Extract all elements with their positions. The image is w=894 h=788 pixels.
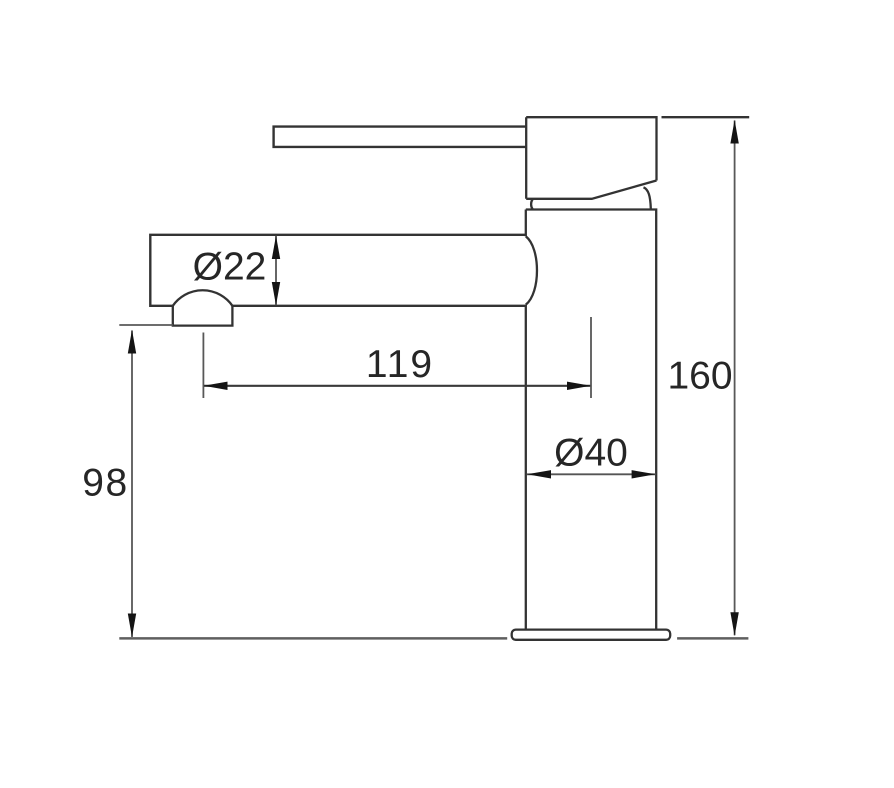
svg-text:160: 160 bbox=[667, 355, 732, 398]
svg-text:Ø22: Ø22 bbox=[193, 246, 267, 289]
svg-text:Ø40: Ø40 bbox=[554, 432, 628, 475]
svg-text:98: 98 bbox=[82, 462, 128, 505]
svg-text:119: 119 bbox=[366, 343, 434, 386]
